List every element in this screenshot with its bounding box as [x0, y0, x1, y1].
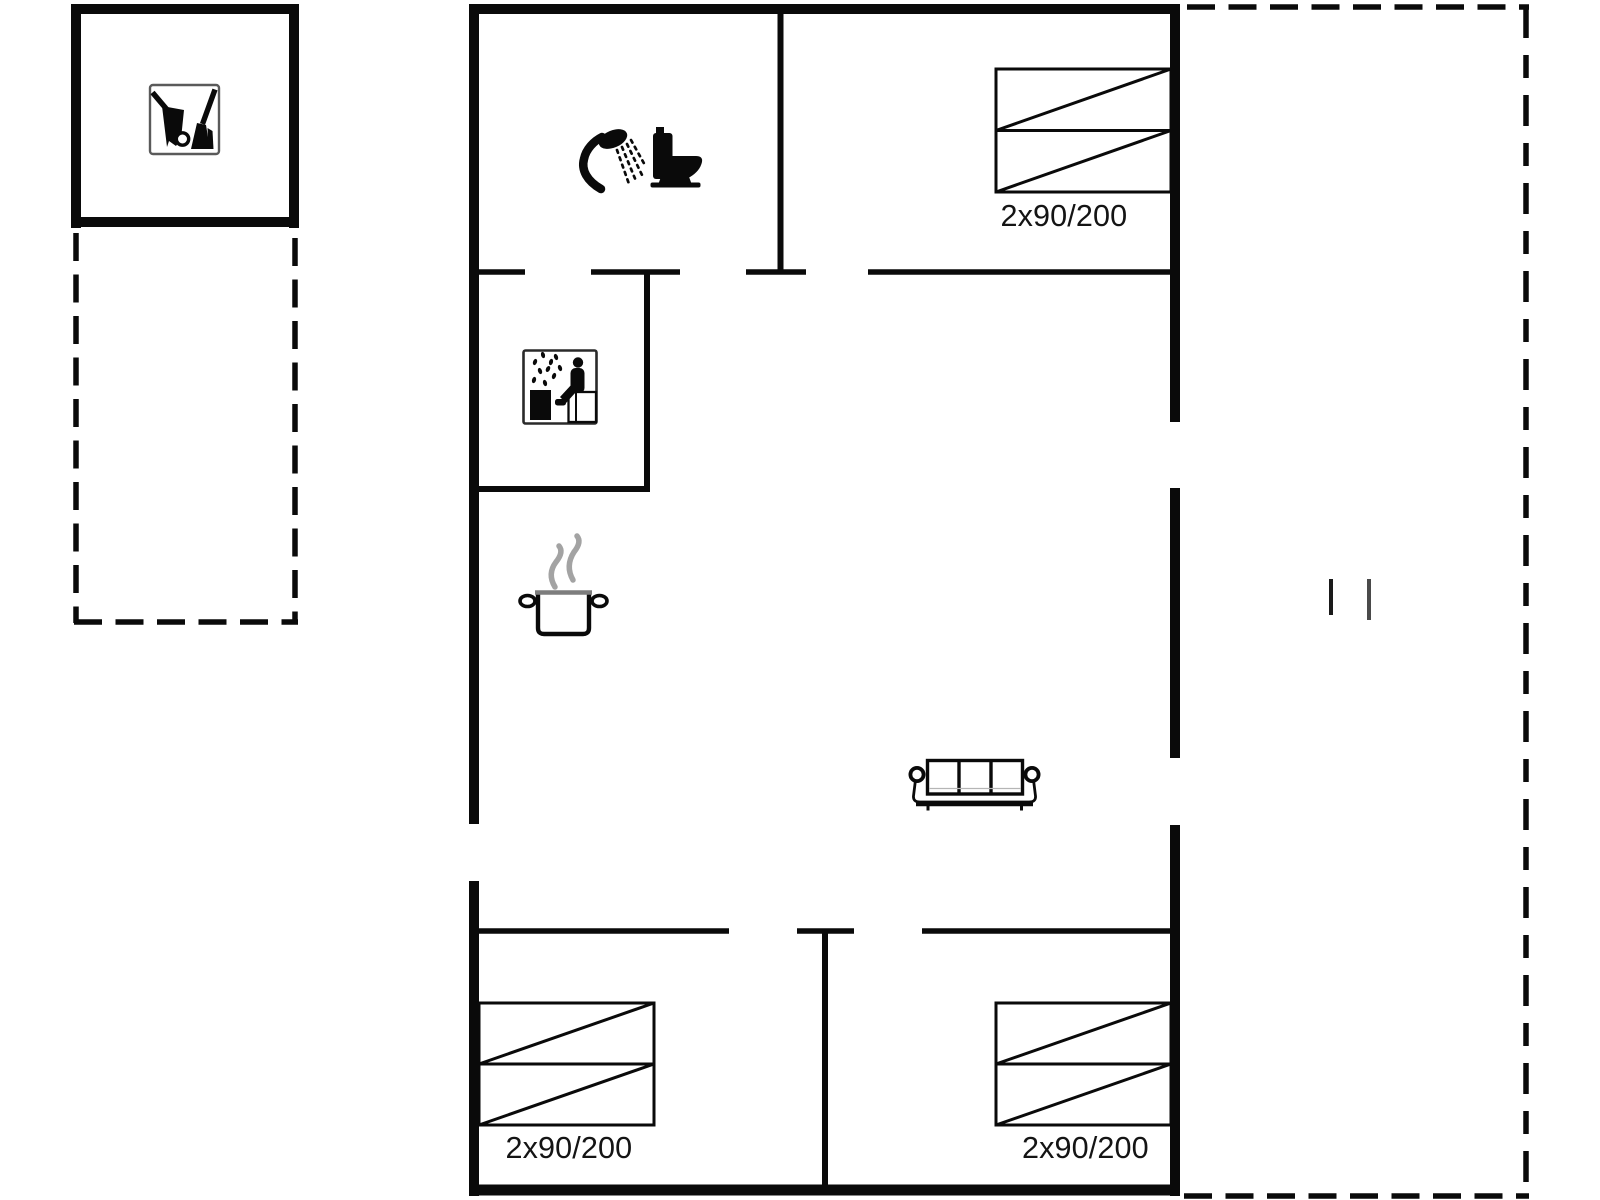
svg-text:2x90/200: 2x90/200 — [1001, 199, 1128, 233]
svg-text:2x90/200: 2x90/200 — [506, 1131, 633, 1165]
svg-text:2x90/200: 2x90/200 — [1022, 1131, 1149, 1165]
